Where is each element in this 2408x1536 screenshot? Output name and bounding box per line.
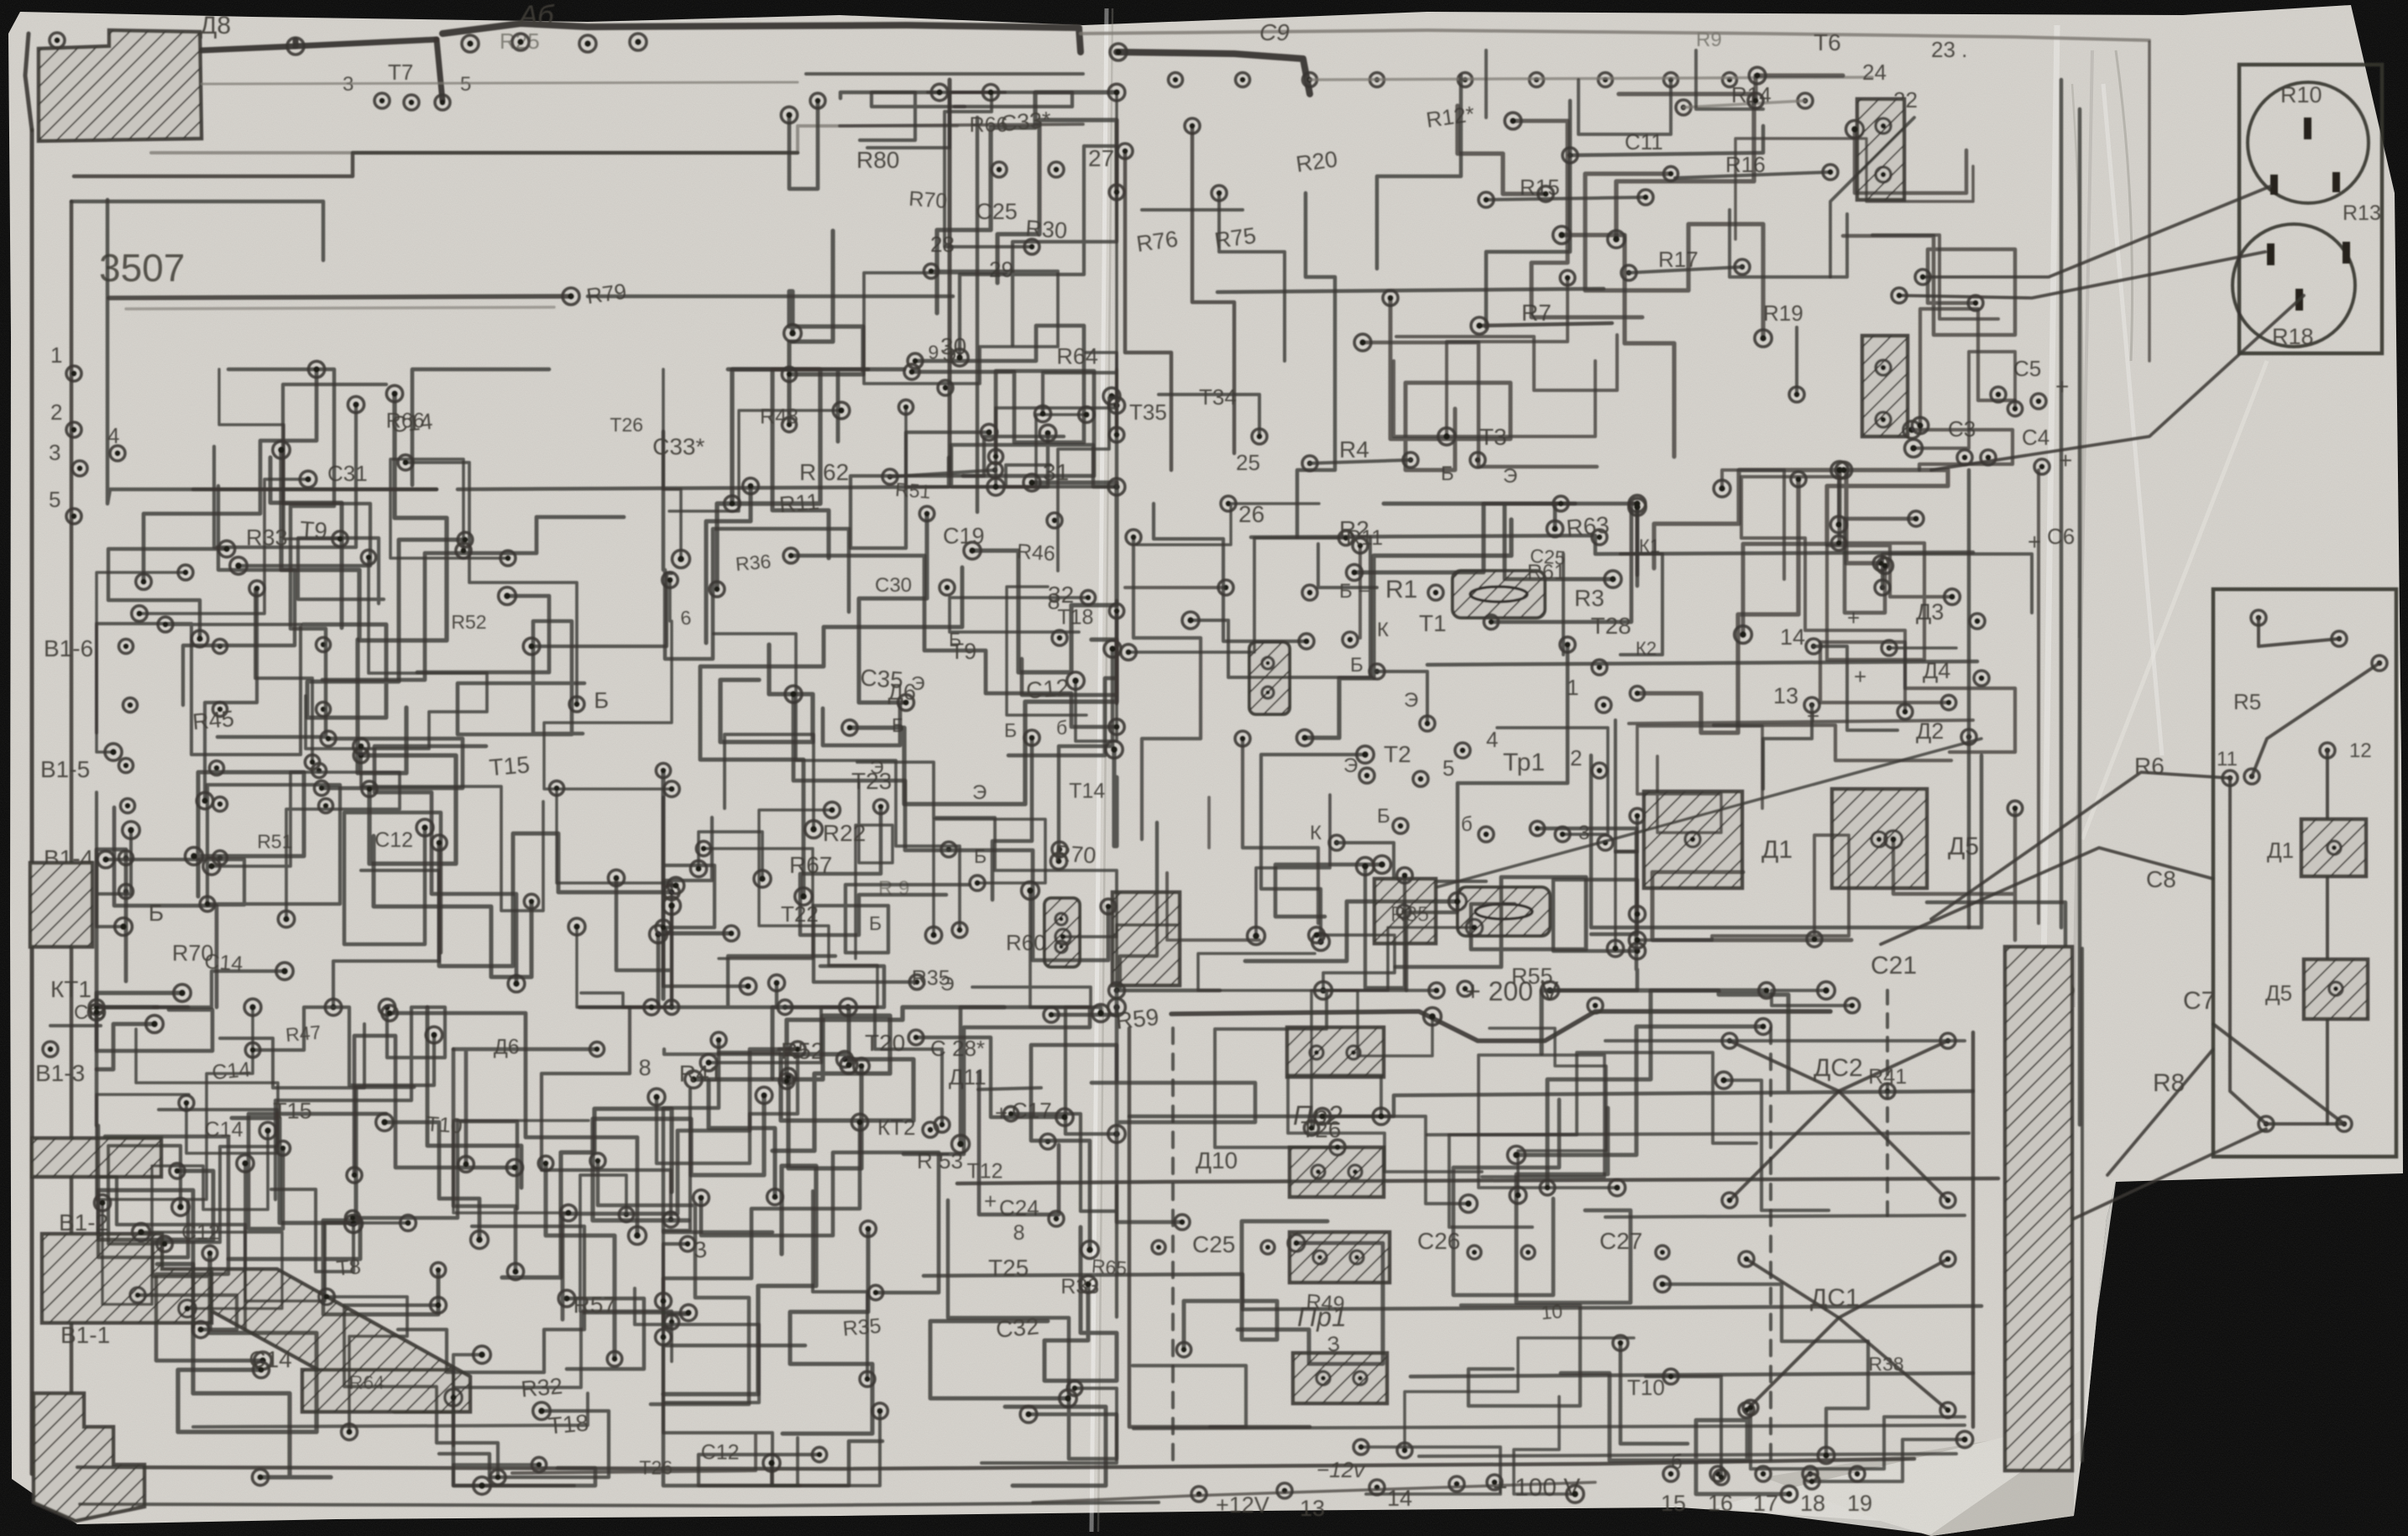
svg-text:8: 8: [1047, 588, 1060, 614]
svg-text:б: б: [1461, 813, 1473, 836]
svg-text:Д6: Д6: [888, 680, 916, 705]
svg-text:Т9: Т9: [950, 639, 977, 664]
svg-text:3: 3: [49, 440, 60, 465]
svg-text:R80: R80: [856, 147, 899, 173]
svg-text:R70: R70: [172, 940, 214, 965]
svg-text:Т9: Т9: [299, 516, 328, 544]
svg-text:R36: R36: [735, 550, 772, 575]
svg-text:R1: R1: [1385, 576, 1417, 603]
svg-text:R61: R61: [1527, 561, 1566, 584]
svg-text:В1-3: В1-3: [35, 1060, 85, 1086]
svg-text:Т20: Т20: [865, 1030, 905, 1056]
svg-text:Т26: Т26: [639, 1456, 673, 1478]
svg-text:Т1: Т1: [1419, 610, 1447, 636]
svg-text:С4: С4: [2022, 425, 2049, 450]
svg-text:R45: R45: [191, 706, 235, 734]
svg-text:−12v: −12v: [1317, 1457, 1366, 1482]
svg-text:R38: R38: [1868, 1353, 1903, 1375]
svg-text:R52: R52: [451, 611, 486, 633]
svg-text:Б: Б: [869, 912, 882, 934]
svg-text:R6: R6: [2134, 753, 2165, 779]
svg-text:Т25: Т25: [988, 1255, 1029, 1281]
svg-text:R49: R49: [1306, 1290, 1346, 1316]
svg-text:R33: R33: [1060, 1275, 1099, 1298]
svg-text:2: 2: [1570, 745, 1582, 771]
svg-text:R22: R22: [823, 820, 866, 846]
svg-text:R33: R33: [246, 525, 288, 551]
svg-text:5: 5: [49, 487, 60, 512]
svg-text:R5: R5: [2233, 689, 2261, 714]
svg-text:R11: R11: [1346, 526, 1383, 550]
svg-text:R52: R52: [781, 1037, 824, 1063]
svg-text:КТ1: КТ1: [50, 976, 92, 1002]
svg-text:18: 18: [1800, 1491, 1825, 1516]
svg-text:С14: С14: [205, 1118, 243, 1142]
svg-text:Э: Э: [972, 781, 987, 804]
svg-text:R63: R63: [1565, 511, 1610, 541]
svg-text:Б: Б: [1377, 805, 1390, 828]
svg-text:Т26: Т26: [610, 414, 643, 436]
svg-text:В1-5: В1-5: [40, 756, 90, 782]
svg-text:б: б: [1056, 717, 1067, 739]
svg-text:R57: R57: [573, 1292, 616, 1318]
svg-text:Д3: Д3: [1916, 599, 1944, 624]
svg-text:Б: Б: [594, 688, 609, 713]
svg-text:Э: Э: [942, 344, 956, 366]
svg-text:Э: Э: [1404, 689, 1418, 712]
svg-text:Д5: Д5: [1948, 833, 1979, 860]
svg-text:R 62: R 62: [799, 459, 849, 485]
svg-text:Д6: Д6: [494, 1035, 520, 1058]
svg-text:Д1: Д1: [2267, 838, 2294, 863]
svg-text:15: 15: [1661, 1491, 1686, 1516]
svg-text:24: 24: [1862, 60, 1887, 85]
svg-text:ДС2: ДС2: [1814, 1054, 1863, 1082]
svg-text:Э: Э: [1343, 755, 1358, 777]
svg-text:R65: R65: [1091, 1255, 1128, 1279]
svg-text:С5: С5: [2013, 356, 2041, 381]
svg-text:+: +: [1847, 605, 1860, 630]
svg-text:С33*: С33*: [652, 434, 704, 460]
svg-text:13: 13: [1300, 1496, 1325, 1521]
svg-text:R35: R35: [1390, 903, 1429, 927]
svg-text:R30: R30: [1024, 216, 1068, 243]
svg-text:С14: С14: [211, 1058, 251, 1084]
svg-text:Д1: Д1: [1762, 836, 1793, 864]
svg-text:Т28: Т28: [1591, 613, 1631, 639]
svg-text:Д10: Д10: [1196, 1147, 1238, 1173]
svg-text:Т8: Т8: [335, 1255, 362, 1280]
svg-text:29: 29: [989, 257, 1013, 282]
svg-text:+: +: [995, 1100, 1008, 1126]
svg-text:13: 13: [1773, 683, 1798, 708]
svg-text:R46: R46: [1016, 540, 1056, 566]
svg-text:+: +: [2059, 447, 2072, 473]
svg-text:С19: С19: [943, 524, 985, 549]
svg-text:С27: С27: [1599, 1228, 1642, 1254]
svg-text:Т18: Т18: [547, 1409, 590, 1439]
svg-text:R70: R70: [1054, 840, 1097, 868]
svg-text:+: +: [984, 1189, 997, 1214]
svg-text:8: 8: [639, 1055, 652, 1080]
svg-text:С14: С14: [249, 1346, 291, 1372]
svg-text:С25: С25: [976, 199, 1018, 224]
svg-text:R4: R4: [1339, 436, 1369, 462]
svg-text:С12: С12: [181, 1221, 220, 1245]
svg-text:Т14: Т14: [1069, 779, 1105, 802]
svg-text:+: +: [2028, 529, 2041, 555]
svg-text:Аб: Аб: [517, 0, 555, 32]
svg-text:R8: R8: [2153, 1069, 2185, 1097]
svg-text:1: 1: [50, 342, 62, 368]
svg-text:Т2: Т2: [1384, 741, 1411, 767]
svg-text:R64: R64: [1056, 343, 1098, 368]
svg-text:R19: R19: [1763, 300, 1803, 326]
svg-text:R18: R18: [2272, 324, 2314, 349]
svg-text:С7: С7: [2183, 987, 2215, 1015]
svg-text:С6: С6: [2047, 524, 2075, 549]
svg-text:Д5: Д5: [2265, 980, 2292, 1006]
svg-text:R47: R47: [285, 1021, 322, 1046]
svg-text:6: 6: [679, 606, 692, 629]
svg-text:+: +: [1854, 664, 1866, 689]
svg-text:R3: R3: [1574, 585, 1604, 611]
svg-text:Тр1: Тр1: [1503, 749, 1545, 776]
svg-text:R35: R35: [842, 1314, 882, 1341]
svg-text:4: 4: [1486, 727, 1498, 752]
svg-text:R41: R41: [679, 1061, 722, 1087]
svg-text:Б: Б: [1004, 719, 1017, 741]
svg-text:С9: С9: [1259, 19, 1290, 45]
svg-text:12: 12: [2349, 739, 2372, 762]
svg-text:R13: R13: [2343, 201, 2381, 225]
svg-text:10: 10: [1540, 1300, 1563, 1324]
svg-text:R70: R70: [908, 187, 948, 213]
svg-text:С14: С14: [390, 409, 434, 437]
svg-text:З: З: [1327, 1332, 1341, 1356]
svg-text:19: 19: [1847, 1491, 1872, 1516]
svg-text:R55: R55: [1511, 964, 1553, 989]
svg-text:С33*: С33*: [1000, 107, 1053, 136]
svg-text:С25: С25: [1192, 1231, 1235, 1257]
svg-text:С12: С12: [1025, 674, 1071, 703]
svg-text:+12V: +12V: [1216, 1492, 1269, 1518]
svg-text:С12: С12: [701, 1440, 740, 1464]
svg-text:5: 5: [1442, 755, 1454, 781]
svg-text:+: +: [2055, 374, 2069, 400]
svg-text:К: К: [1377, 619, 1389, 641]
svg-text:С21: С21: [1871, 952, 1917, 980]
svg-text:25: 25: [1236, 450, 1260, 475]
svg-text:R41: R41: [1868, 1065, 1907, 1089]
svg-text:14: 14: [1780, 624, 1805, 650]
svg-text:R51: R51: [257, 831, 292, 853]
svg-text:Т15: Т15: [488, 751, 531, 781]
svg-text:9: 9: [928, 342, 939, 363]
svg-text:Т10: Т10: [426, 1112, 463, 1138]
svg-text:ДС1: ДС1: [1810, 1284, 1860, 1312]
svg-text:Т34: Т34: [1199, 384, 1237, 410]
svg-text:3507: 3507: [99, 246, 185, 290]
svg-text:Д8: Д8: [200, 12, 231, 39]
svg-text:11: 11: [2217, 748, 2238, 771]
svg-text:С30: С30: [875, 574, 912, 597]
svg-text:Т15: Т15: [273, 1098, 312, 1123]
svg-text:Б: Б: [1441, 462, 1454, 485]
svg-text:Б: Б: [149, 900, 164, 926]
svg-text:Т10: Т10: [1627, 1375, 1665, 1400]
svg-text:R7: R7: [1521, 300, 1552, 326]
svg-text:R10: R10: [2280, 82, 2322, 107]
svg-text:R35: R35: [912, 966, 950, 990]
svg-text:8: 8: [1013, 1221, 1025, 1245]
svg-text:R9: R9: [1696, 29, 1722, 51]
svg-text:Т35: Т35: [1129, 400, 1167, 425]
svg-text:2: 2: [50, 400, 62, 425]
svg-text:В1-6: В1-6: [44, 635, 93, 661]
svg-text:С12: С12: [374, 828, 413, 852]
svg-text:В1-1: В1-1: [60, 1322, 110, 1348]
svg-text:С24: С24: [999, 1195, 1039, 1220]
svg-text:С8: С8: [2146, 866, 2176, 892]
svg-text:Б −: Б −: [1339, 580, 1369, 603]
svg-text:Б: Б: [1350, 654, 1364, 677]
svg-text:Т18: Т18: [1057, 606, 1093, 630]
svg-text:R51: R51: [894, 478, 931, 503]
svg-text:R64: R64: [349, 1371, 385, 1393]
svg-text:Т12: Т12: [967, 1159, 1003, 1183]
svg-text:R59: R59: [1114, 1004, 1160, 1034]
svg-text:R32: R32: [520, 1373, 563, 1402]
svg-text:Т6: Т6: [1814, 29, 1841, 55]
svg-text:R11: R11: [778, 489, 820, 518]
svg-text:З: З: [693, 1236, 709, 1262]
svg-text:27: 27: [1088, 145, 1114, 171]
svg-text:Т7: Т7: [388, 60, 413, 85]
svg-text:С32: С32: [995, 1313, 1040, 1342]
svg-text:К: К: [1310, 822, 1322, 844]
svg-text:R48: R48: [760, 405, 798, 429]
svg-text:R60: R60: [1006, 930, 1046, 955]
svg-text:Т26: Т26: [1301, 1116, 1341, 1142]
svg-text:23 .: 23 .: [1931, 37, 1967, 62]
